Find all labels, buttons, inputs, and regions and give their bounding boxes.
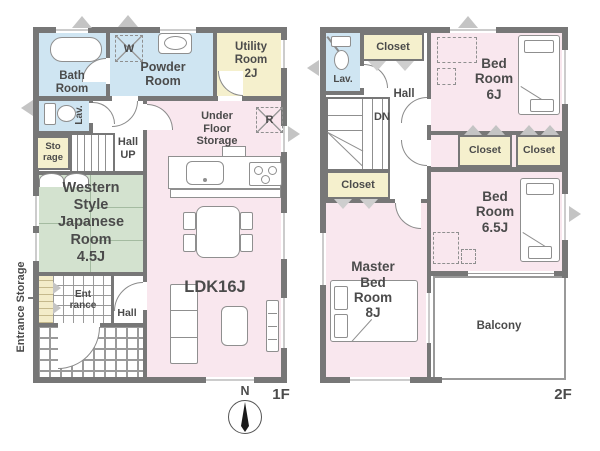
utility-room-label: Utility Room 2J [222,38,280,84]
faucet-dot [203,178,207,182]
bath-room-label: Bath Room [42,70,102,96]
door-gap [106,58,110,84]
window [426,293,432,343]
entrance-storage-area [39,276,53,323]
bed6-pillow [524,40,554,53]
fridge-label: R [266,114,274,126]
counter-front [170,189,281,198]
window [33,233,39,261]
tv-board-line [268,339,277,340]
stair-tread [98,135,99,171]
arrow-marker-icon [288,126,300,142]
f2-floor-label: 2F [546,386,580,404]
hall1-label: Hall [112,306,142,322]
f1-wall [213,33,217,96]
door-arc-powder [112,101,138,127]
bathtub [50,37,102,62]
window [281,298,287,348]
closet-b-label: Closet [516,141,562,161]
door-gap [143,282,147,310]
burner [261,175,270,184]
sink-bowl [164,36,187,50]
entrance-label: Ent rance [62,287,104,313]
sliding-window [468,271,554,276]
f2-wall [326,91,364,95]
stair-tread [105,135,106,171]
chair [183,234,196,252]
f2-wall [431,167,562,172]
window [33,196,39,226]
vent-triangle-icon [458,16,478,28]
door-arc-bed65 [401,140,427,166]
f2-outer-wall-top [320,27,568,33]
window [320,233,326,285]
lav1-label: Lav. [65,107,95,123]
coffee-table [221,306,248,346]
stair-tread [77,135,78,171]
door-gap [427,99,431,125]
dn-label: DN [366,109,398,125]
closet-door-mark [396,61,414,71]
door-gap [427,140,431,166]
f2-outer-wall-left [320,27,326,383]
arrow-marker-icon [569,206,581,222]
washer-label: W [124,43,134,55]
burner [268,166,277,175]
bed65-blanket [528,246,552,259]
stair-tread [91,135,92,171]
storage-label: Sto rage [38,140,68,166]
under-floor-storage-label: Under Floor Storage [188,108,246,150]
vent-triangle-icon [72,16,92,28]
arrow-marker-icon [21,100,33,116]
window [206,377,254,383]
bed6-desk-chair [437,68,456,85]
toilet-tank-1f [44,103,56,125]
window [281,40,287,68]
balcony-label: Balcony [460,318,538,336]
tv-board-line [268,326,277,327]
tv-board-line [268,313,277,314]
floor-plan: W R Bath Room Powder Room Utility Room 2… [0,0,600,451]
dining-table [196,206,240,258]
leader-line [28,297,38,299]
stair-tread [328,130,362,131]
bed6-label: Bed Room 6J [462,53,526,105]
powder-room-label: Powder Room [120,58,206,90]
sofa-cushion-line [171,310,197,311]
window [281,213,287,259]
arrow-marker-icon [307,60,319,76]
stair-tread [362,99,363,169]
f1-wall [36,272,143,276]
japanese-room-label: Western Style Japanese Room 4.5J [41,177,141,269]
stair-tread [84,135,85,171]
refrigerator-icon: R [256,107,283,133]
toilet-tank-2f [331,36,351,47]
chair [240,234,253,252]
sofa-cushion-line [171,337,197,338]
master-label: Master Bed Room 8J [332,256,414,324]
stair-tread [328,115,362,116]
door-gap [218,96,242,101]
window [350,377,410,383]
closet-hall-label: Closet [362,37,424,57]
f1-wall [36,96,281,101]
ldk-label: LDK16J [178,276,252,298]
closet-master-label: Closet [326,175,390,195]
bed65-desk-chair [461,249,476,264]
entrance-storage-label: Entrance Storage [14,252,28,362]
chair [240,212,253,230]
closet-a-label: Closet [458,141,512,161]
f1-floor-label: 1F [266,386,296,404]
hall2-label: Hall [383,86,425,104]
compass-north-label: N [234,384,256,398]
burner [254,166,263,175]
bed65-label: Bed Room 6.5J [455,186,535,238]
hall-up-label: Hall UP [112,135,144,163]
window [562,194,568,240]
window [562,50,568,104]
bed6-blanket [530,99,554,112]
chair [183,212,196,230]
toilet-bowl-2f [334,50,349,70]
lav2-label: Lav. [328,72,358,88]
vent-triangle-icon [118,15,138,27]
